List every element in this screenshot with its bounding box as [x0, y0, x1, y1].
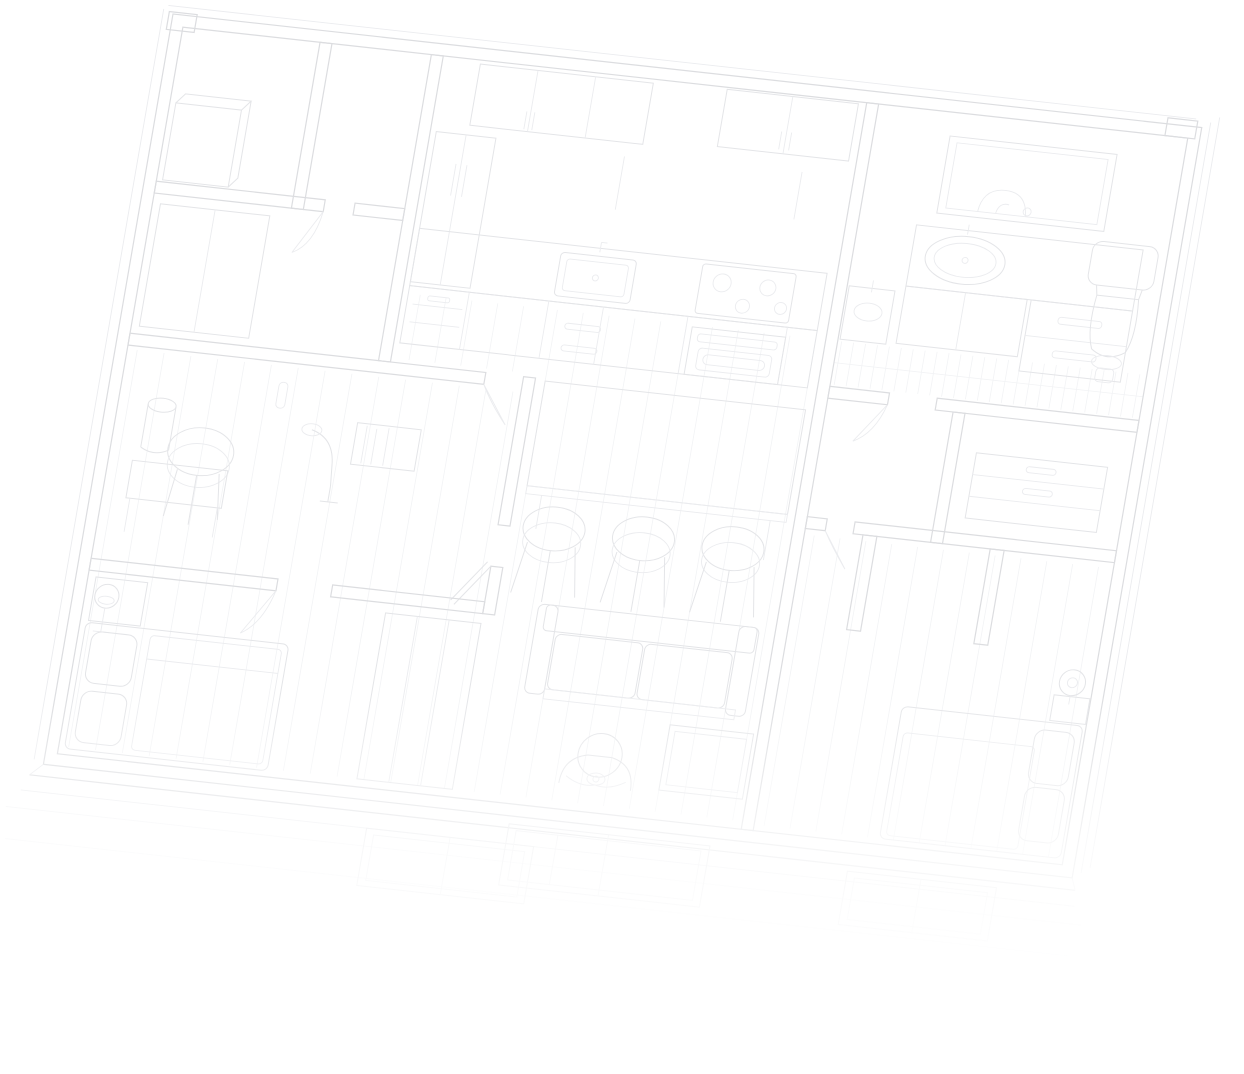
wall-bathroom-south-2 [935, 398, 1139, 432]
bed-left-duvet [131, 635, 282, 764]
sofa-front-edge [543, 689, 736, 720]
living-area [509, 604, 772, 803]
sofa-cushion-left [547, 634, 644, 699]
window-mullion [548, 829, 608, 896]
door-leaf-bedroomleft [240, 588, 276, 636]
wardrobe-left-mullions [389, 616, 449, 785]
bathroom [838, 128, 1175, 386]
mirror-inner-frame [946, 143, 1108, 225]
stool-seat-side [609, 530, 673, 576]
wardrobe-left [357, 613, 481, 789]
drawer-handle-2 [564, 323, 601, 333]
bed-right-pillow-2 [1017, 786, 1066, 844]
window-left [357, 828, 534, 904]
vanity-faucet [968, 225, 970, 235]
mirror-reflection-ear [1022, 208, 1031, 217]
closet-stub-2 [974, 549, 1004, 645]
wall-center-right-vertical [741, 103, 878, 831]
bed-right-duvet [886, 733, 1035, 850]
sliding-wall-handle [275, 382, 288, 409]
facade-bottom-line [5, 839, 1069, 956]
bed-right-pillow-1 [1027, 729, 1076, 787]
wall-bedroomleft-north-1 [89, 558, 278, 590]
dining-table-edge [526, 486, 788, 523]
kitchen-sink [554, 252, 637, 304]
inner-boundary [57, 27, 1187, 865]
bed-left-mattress [64, 622, 289, 771]
countertop [410, 228, 827, 330]
burner-3 [759, 279, 778, 297]
person-head [574, 731, 625, 779]
side-table [659, 725, 754, 799]
window-frame [838, 871, 996, 941]
person-cup [586, 772, 606, 786]
plank-lines-right-bedroom [764, 536, 1098, 858]
dresser-drawer-lines [969, 475, 1104, 511]
vanity-sink-basin [931, 240, 998, 280]
wall-bedroomright-north-2 [853, 522, 1116, 563]
apartment-line-drawing [0, 0, 1244, 1074]
drawer-handle-1 [427, 296, 450, 303]
seated-person [559, 730, 640, 791]
study-shelf-books [361, 426, 389, 466]
corner-notch-right [1165, 118, 1198, 139]
side-table-top [666, 731, 747, 792]
ground-line [6, 806, 1081, 925]
dresser-handle-2 [1022, 488, 1053, 497]
door-leaf-study [477, 384, 511, 425]
window-inner-frame [508, 831, 701, 901]
bed-left-fold [147, 659, 278, 673]
wall-bathroom-south-1 [828, 386, 890, 404]
drawing-canvas [0, 0, 1244, 1074]
dresser [965, 453, 1107, 533]
stool-seat-side [698, 540, 762, 586]
dresser-handle-1 [1026, 466, 1057, 475]
stool-legs [510, 541, 584, 605]
vanity-door-line [956, 293, 966, 350]
study [102, 93, 474, 562]
window-inner-frame [847, 878, 987, 934]
window-mullion [912, 879, 921, 932]
vanity-drawer-handle-2 [1052, 351, 1097, 363]
stool-legs [689, 561, 763, 625]
facade-windows [4, 762, 1082, 964]
drawer-handle-3 [561, 345, 598, 355]
window-mullion [440, 837, 450, 894]
wall-topleft-divider [291, 42, 332, 209]
right-wall-band [1081, 117, 1220, 874]
tall-cabinet-doors [435, 134, 472, 285]
vanity-drain [962, 257, 969, 264]
bedroom-left [64, 577, 481, 792]
burner-4 [774, 302, 788, 315]
door-leaf-bedroomright [819, 531, 851, 569]
burner-2 [734, 299, 750, 314]
arc-floor-lamp [300, 430, 350, 503]
bin-top [147, 397, 177, 414]
kitchen-drain [592, 275, 599, 282]
facade-top-line [29, 775, 1075, 890]
wall-left-vertical [379, 55, 444, 362]
interior-walls [57, 27, 1187, 865]
drawer-lines [410, 304, 463, 327]
outer-boundary [43, 14, 1201, 878]
closet-stub-1 [847, 535, 877, 631]
wall-roomA-south-1 [154, 181, 325, 212]
vanity-counter [906, 225, 1143, 311]
stool-seat-side [519, 520, 583, 566]
upper-cabinet-left-dividers [523, 70, 595, 138]
dining-table-top [527, 381, 805, 514]
vanity-door-unit [896, 286, 1027, 357]
base-cabinets [400, 286, 817, 388]
small-basin [840, 286, 895, 344]
small-basin-bowl [853, 302, 884, 323]
wall-study-north [128, 333, 486, 384]
bedroom-left-lamp-stem [93, 607, 113, 632]
outer-walls [33, 1, 1219, 880]
window-right [838, 871, 996, 941]
kitchen-faucet [600, 242, 608, 253]
person-arms [565, 776, 626, 790]
toilet-bowl [1085, 285, 1143, 359]
burner-1 [712, 273, 733, 293]
sofa-cushion-right [636, 644, 733, 709]
vanity-drawer-handle-1 [1057, 317, 1102, 329]
plank-lines-center [337, 295, 816, 820]
wall-hall-vertical-2 [483, 566, 503, 615]
wall-hall-vertical-1 [498, 377, 536, 526]
wall-bedroomright-north-1 [805, 517, 827, 531]
closet-panel-split [194, 210, 215, 332]
small-basin-tap [871, 280, 873, 292]
door-leaf-roomB [292, 209, 323, 255]
door-leaf-bathroom [853, 402, 888, 445]
cabinet-pull-handles [615, 152, 802, 229]
wall-smallrooms-divider [931, 412, 965, 544]
bedroom-left-lamp-inner [98, 595, 115, 605]
wall-top-echo [34, 5, 1196, 873]
vanity-drawer-split [1025, 335, 1126, 346]
bed-right-mattress [879, 706, 1083, 858]
stool-legs [599, 551, 673, 615]
wall-roomA-south-2 [353, 203, 405, 220]
nightstand-lamp-inner [1067, 677, 1079, 688]
nightstand-lamp [1057, 668, 1087, 697]
storage-cube [163, 93, 252, 188]
upper-cabinet-right-dividers [778, 96, 798, 154]
sofa-back [543, 605, 758, 654]
kitchen-sink-basin [562, 259, 629, 297]
